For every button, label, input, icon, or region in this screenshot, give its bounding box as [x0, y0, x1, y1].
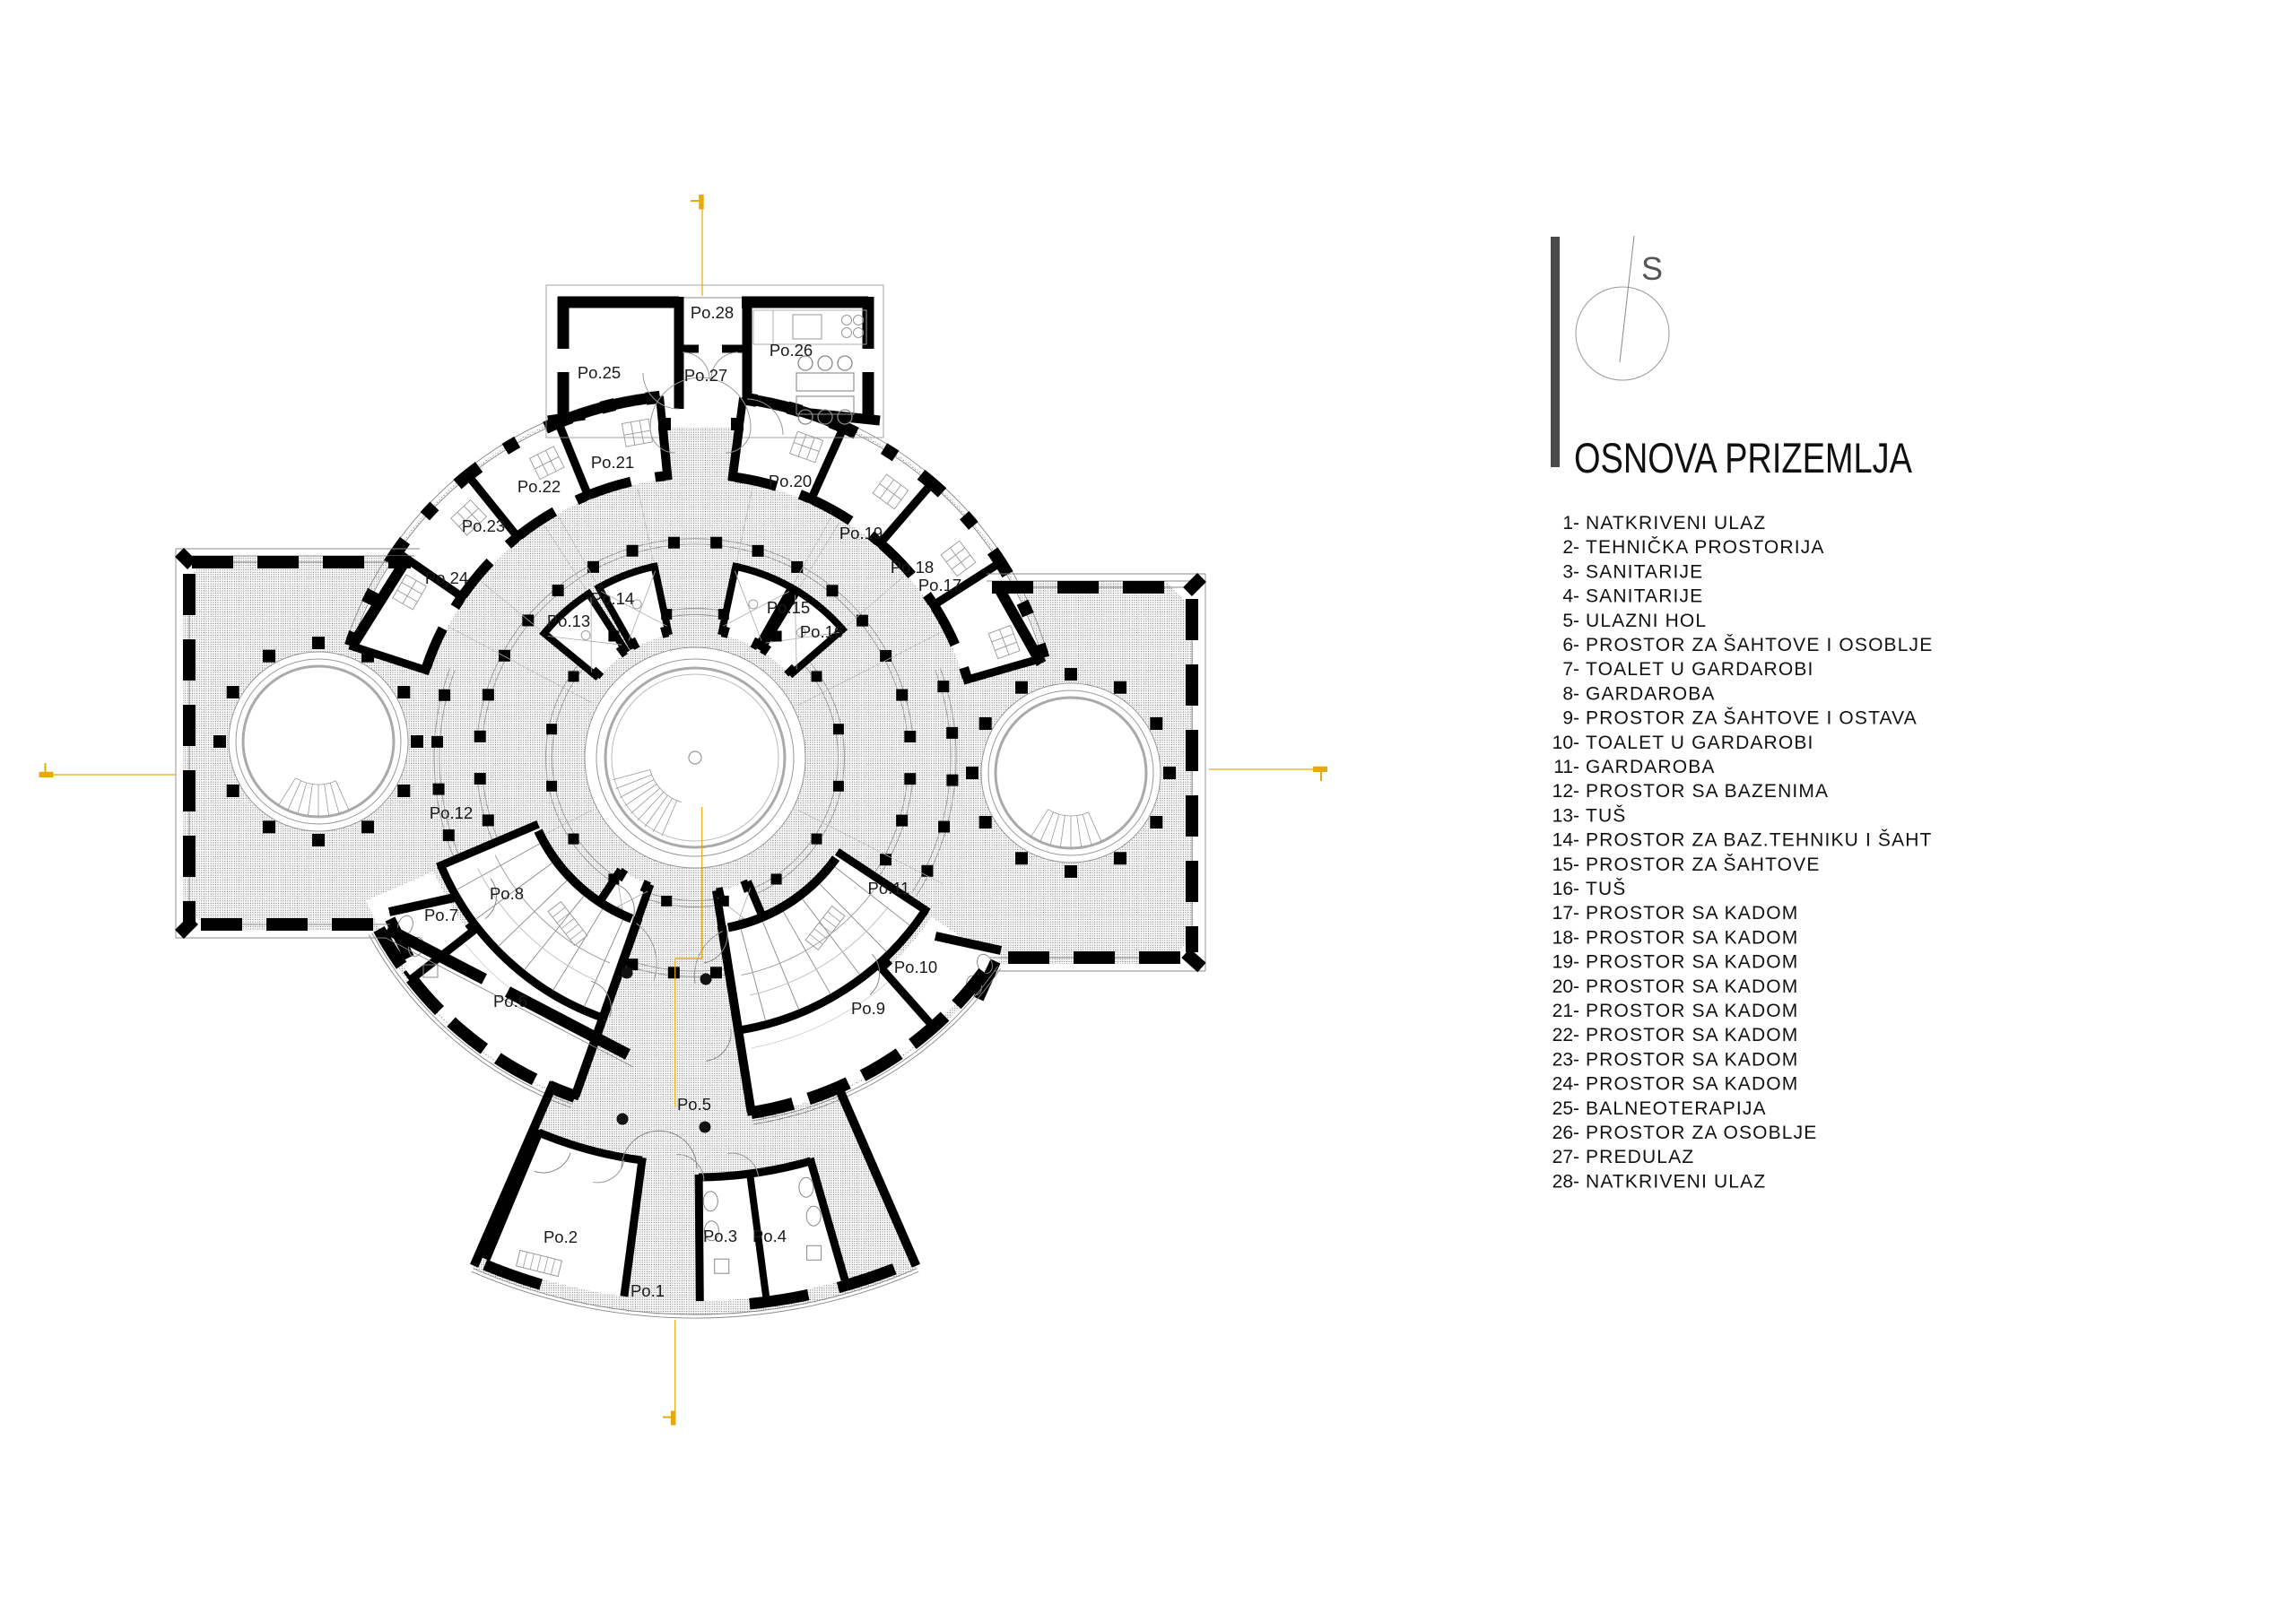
svg-text:TOALET U GARDAROBI: TOALET U GARDAROBI: [1586, 659, 1813, 680]
svg-text:Po.11: Po.11: [868, 879, 910, 898]
svg-text:25-: 25-: [1552, 1098, 1579, 1119]
svg-text:Po.21: Po.21: [591, 453, 634, 472]
svg-text:15-: 15-: [1552, 854, 1579, 875]
svg-text:6-: 6-: [1562, 635, 1579, 655]
svg-text:ULAZNI HOL: ULAZNI HOL: [1586, 611, 1707, 631]
svg-text:14-: 14-: [1552, 830, 1579, 851]
svg-text:18-: 18-: [1552, 927, 1579, 948]
svg-text:TUŠ: TUŠ: [1586, 805, 1626, 826]
svg-text:SANITARIJE: SANITARIJE: [1586, 586, 1703, 607]
svg-text:PROSTOR ZA ŠAHTOVE I OSTAVA: PROSTOR ZA ŠAHTOVE I OSTAVA: [1586, 708, 1918, 729]
svg-text:1-: 1-: [1562, 513, 1579, 533]
svg-text:21-: 21-: [1552, 1001, 1579, 1021]
svg-text:NATKRIVENI ULAZ: NATKRIVENI ULAZ: [1586, 513, 1766, 533]
svg-text:Po.23: Po.23: [462, 516, 505, 535]
svg-text:2-: 2-: [1562, 537, 1579, 558]
svg-text:Po.28: Po.28: [691, 303, 734, 322]
svg-text:13-: 13-: [1552, 805, 1579, 826]
svg-text:10-: 10-: [1552, 733, 1579, 753]
svg-text:SANITARIJE: SANITARIJE: [1586, 561, 1703, 582]
svg-text:OSNOVA PRIZEMLJA: OSNOVA PRIZEMLJA: [1574, 434, 1913, 481]
svg-text:17-: 17-: [1552, 903, 1579, 924]
svg-text:Po.4: Po.4: [752, 1227, 787, 1245]
svg-text:Po.7: Po.7: [424, 906, 458, 924]
svg-text:7-: 7-: [1562, 659, 1579, 680]
svg-text:PROSTOR SA KADOM: PROSTOR SA KADOM: [1586, 1025, 1798, 1045]
svg-text:16-: 16-: [1552, 879, 1579, 899]
svg-text:Po.8: Po.8: [490, 884, 524, 903]
svg-text:Po.1: Po.1: [631, 1281, 665, 1300]
svg-text:Po.16: Po.16: [800, 622, 843, 641]
svg-text:9-: 9-: [1562, 708, 1579, 729]
svg-text:PROSTOR ZA BAZ.TEHNIKU I ŠAHT: PROSTOR ZA BAZ.TEHNIKU I ŠAHT: [1586, 830, 1933, 851]
svg-text:PROSTOR SA KADOM: PROSTOR SA KADOM: [1586, 1001, 1798, 1021]
svg-text:22-: 22-: [1552, 1025, 1579, 1045]
svg-text:Po.5: Po.5: [677, 1095, 711, 1114]
svg-text:26-: 26-: [1552, 1123, 1579, 1143]
svg-text:Po.22: Po.22: [517, 477, 561, 496]
svg-text:Po.24: Po.24: [425, 568, 468, 587]
svg-text:BALNEOTERAPIJA: BALNEOTERAPIJA: [1586, 1098, 1767, 1119]
svg-text:PROSTOR SA KADOM: PROSTOR SA KADOM: [1586, 1074, 1798, 1095]
svg-text:PROSTOR SA KADOM: PROSTOR SA KADOM: [1586, 952, 1798, 973]
svg-text:24-: 24-: [1552, 1074, 1579, 1095]
svg-text:Po.17: Po.17: [918, 576, 961, 594]
svg-text:PROSTOR SA BAZENIMA: PROSTOR SA BAZENIMA: [1586, 781, 1829, 802]
svg-text:NATKRIVENI ULAZ: NATKRIVENI ULAZ: [1586, 1171, 1766, 1192]
svg-text:Po.10: Po.10: [894, 958, 937, 976]
svg-text:PROSTOR SA KADOM: PROSTOR SA KADOM: [1586, 1049, 1798, 1070]
svg-text:Po.18: Po.18: [891, 558, 934, 577]
svg-text:Po.25: Po.25: [578, 363, 621, 382]
svg-text:Po.26: Po.26: [770, 341, 813, 360]
svg-text:PROSTOR SA KADOM: PROSTOR SA KADOM: [1586, 903, 1798, 924]
svg-text:GARDAROBA: GARDAROBA: [1586, 757, 1716, 777]
svg-text:20-: 20-: [1552, 976, 1579, 997]
svg-text:TEHNIČKA PROSTORIJA: TEHNIČKA PROSTORIJA: [1586, 537, 1825, 558]
svg-text:PROSTOR SA KADOM: PROSTOR SA KADOM: [1586, 927, 1798, 948]
svg-text:27-: 27-: [1552, 1147, 1579, 1167]
svg-text:TUŠ: TUŠ: [1586, 879, 1626, 899]
svg-text:19-: 19-: [1552, 952, 1579, 973]
svg-text:5-: 5-: [1562, 611, 1579, 631]
svg-text:3-: 3-: [1562, 561, 1579, 582]
svg-text:Po.3: Po.3: [703, 1227, 737, 1245]
svg-text:PROSTOR ZA ŠAHTOVE I OSOBLJE: PROSTOR ZA ŠAHTOVE I OSOBLJE: [1586, 635, 1933, 655]
svg-text:PROSTOR ZA OSOBLJE: PROSTOR ZA OSOBLJE: [1586, 1123, 1817, 1143]
svg-text:Po.13: Po.13: [547, 612, 590, 630]
svg-text:8-: 8-: [1562, 683, 1579, 704]
svg-text:Po.20: Po.20: [769, 472, 812, 490]
svg-text:S: S: [1641, 250, 1663, 287]
svg-text:GARDAROBA: GARDAROBA: [1586, 683, 1716, 704]
svg-text:Po.12: Po.12: [430, 803, 473, 822]
svg-text:PREDULAZ: PREDULAZ: [1586, 1147, 1694, 1167]
svg-text:TOALET U GARDAROBI: TOALET U GARDAROBI: [1586, 733, 1813, 753]
svg-text:Po.27: Po.27: [684, 366, 727, 385]
svg-text:12-: 12-: [1552, 781, 1579, 802]
svg-text:11-: 11-: [1553, 757, 1579, 777]
svg-text:Po.9: Po.9: [851, 999, 885, 1018]
svg-text:23-: 23-: [1552, 1049, 1579, 1070]
svg-text:Po.15: Po.15: [767, 598, 810, 617]
svg-text:28-: 28-: [1552, 1171, 1579, 1192]
svg-text:Po.14: Po.14: [591, 589, 634, 608]
svg-text:4-: 4-: [1562, 586, 1579, 607]
svg-text:Po.6: Po.6: [493, 992, 527, 1010]
svg-text:Po.2: Po.2: [544, 1227, 578, 1246]
svg-text:Po.19: Po.19: [839, 524, 883, 542]
svg-text:PROSTOR SA KADOM: PROSTOR SA KADOM: [1586, 976, 1798, 997]
svg-text:PROSTOR ZA ŠAHTOVE: PROSTOR ZA ŠAHTOVE: [1586, 854, 1820, 875]
